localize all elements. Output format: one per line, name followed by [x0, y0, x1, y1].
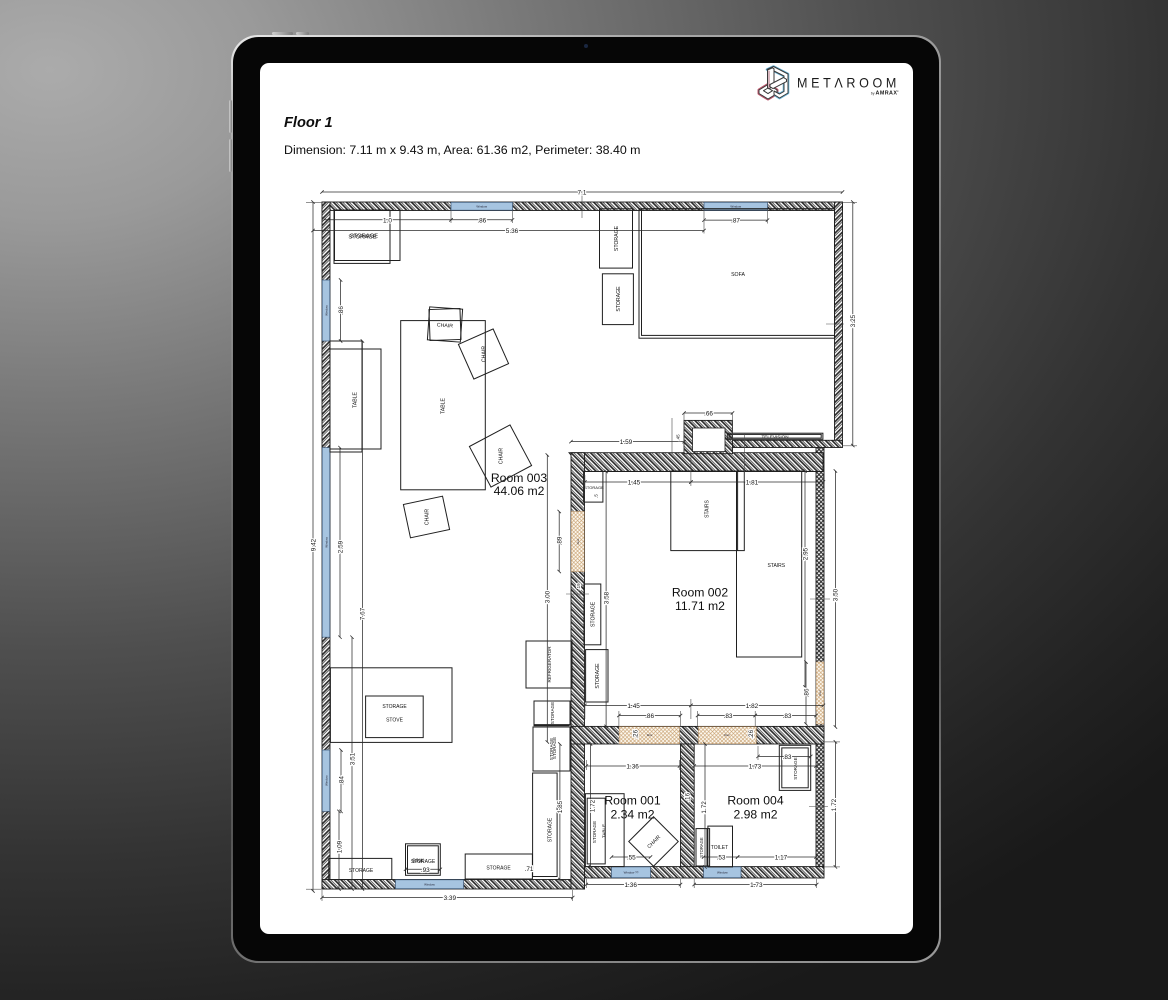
svg-text:1.73: 1.73: [749, 764, 762, 771]
svg-text:STAIRS: STAIRS: [767, 563, 785, 569]
svg-text:STORAGE: STORAGE: [350, 234, 378, 240]
svg-text:.86: .86: [803, 688, 810, 697]
svg-text:TABLE: TABLE: [441, 397, 447, 414]
svg-text:Window: Window: [717, 871, 729, 875]
svg-text:.45: .45: [675, 434, 680, 441]
svg-text:.89: .89: [557, 536, 564, 545]
svg-text:3.25: 3.25: [850, 314, 857, 327]
svg-text:.86: .86: [477, 217, 486, 224]
svg-text:REFRIGERATOR: REFRIGERATOR: [547, 646, 552, 683]
svg-text:1.85: 1.85: [557, 800, 564, 813]
svg-text:1.59: 1.59: [620, 439, 633, 446]
svg-text:Room 002: Room 002: [672, 586, 728, 600]
svg-text:Room 004: Room 004: [727, 794, 783, 808]
svg-text:3.51: 3.51: [349, 752, 356, 765]
svg-text:.93: .93: [421, 867, 430, 874]
svg-text:1.36: 1.36: [624, 882, 637, 889]
svg-text:2.34 m2: 2.34 m2: [610, 808, 654, 822]
svg-text:STORAGE: STORAGE: [595, 663, 601, 689]
svg-text:STORAGE: STORAGE: [793, 757, 798, 779]
svg-text:.53: .53: [717, 855, 726, 862]
svg-text:1.45: 1.45: [628, 480, 641, 487]
svg-text:1.36: 1.36: [626, 764, 639, 771]
svg-text:1.72: 1.72: [831, 798, 838, 811]
svg-text:Door: Door: [647, 733, 653, 737]
svg-text:SOFA: SOFA: [731, 272, 745, 278]
svg-text:STORAGE: STORAGE: [614, 225, 620, 251]
svg-text:Window: Window: [325, 304, 329, 316]
svg-text:.55: .55: [627, 855, 636, 862]
svg-text:Window: Window: [730, 205, 742, 209]
svg-text:Door: Door: [576, 539, 580, 545]
svg-text:.86: .86: [645, 713, 654, 720]
svg-text:1.09: 1.09: [336, 840, 343, 853]
svg-text:1.0: 1.0: [383, 217, 392, 224]
svg-text:1.82: 1.82: [746, 703, 759, 710]
svg-text:STORAGE: STORAGE: [590, 601, 596, 627]
svg-text:STORAGE: STORAGE: [486, 866, 511, 872]
svg-text:5.36: 5.36: [506, 228, 519, 235]
svg-text:TABLE: TABLE: [353, 391, 359, 408]
svg-text:SINK: SINK: [412, 859, 424, 865]
svg-text:1.73: 1.73: [750, 882, 763, 889]
svg-text:STOVE: STOVE: [386, 718, 404, 724]
svg-text:.26: .26: [632, 729, 639, 738]
svg-text:44.06 m2: 44.06 m2: [494, 484, 545, 498]
svg-text:9.42: 9.42: [310, 538, 317, 551]
svg-text:CHAIR: CHAIR: [646, 834, 662, 850]
svg-text:STORAGE: STORAGE: [548, 817, 554, 842]
svg-text:3.00: 3.00: [545, 590, 552, 603]
svg-text:7.67: 7.67: [360, 607, 367, 620]
svg-text:STORAGE: STORAGE: [552, 737, 557, 759]
svg-text:1.81: 1.81: [746, 480, 759, 487]
svg-text:3.39: 3.39: [444, 895, 457, 902]
svg-text:.83: .83: [783, 754, 792, 761]
svg-text:CHAIR: CHAIR: [482, 346, 488, 362]
svg-text:3.50: 3.50: [833, 588, 840, 601]
svg-text:1.17: 1.17: [775, 855, 788, 862]
svg-text:Door: Door: [724, 733, 730, 737]
svg-text:Room 001: Room 001: [604, 794, 660, 808]
svg-text:Window: Window: [325, 536, 329, 548]
svg-text:7.1: 7.1: [578, 189, 587, 196]
svg-text:CHAIR: CHAIR: [437, 322, 454, 329]
svg-text:.83: .83: [724, 713, 733, 720]
svg-text:.16: .16: [685, 792, 692, 801]
svg-text:2.95: 2.95: [802, 547, 809, 560]
svg-text:Window: Window: [324, 775, 328, 787]
svg-text:11.71 m2: 11.71 m2: [675, 599, 725, 613]
svg-text:STORAGE: STORAGE: [550, 702, 555, 724]
svg-text:STORAGE: STORAGE: [699, 837, 704, 858]
svg-text:STORAGE: STORAGE: [382, 704, 407, 710]
svg-text:TABLE: TABLE: [602, 824, 607, 838]
svg-text:Door: Door: [818, 690, 822, 696]
svg-text:TELEVISION: TELEVISION: [761, 435, 788, 440]
svg-text:STORAGE: STORAGE: [349, 868, 374, 874]
svg-text:1.72: 1.72: [701, 801, 708, 814]
svg-text:CHAIR: CHAIR: [499, 448, 505, 464]
svg-text:STORAGE: STORAGE: [584, 485, 604, 490]
svg-text:2.98 m2: 2.98 m2: [733, 808, 777, 822]
svg-text:STAIRS: STAIRS: [705, 499, 711, 517]
svg-text:.5: .5: [593, 494, 598, 498]
svg-text:2.59: 2.59: [337, 540, 344, 553]
svg-text:Window: Window: [476, 205, 488, 209]
svg-text:Window: Window: [424, 883, 436, 887]
svg-text:.71: .71: [525, 866, 534, 873]
svg-text:CHAIR: CHAIR: [425, 509, 431, 525]
svg-text:1.72: 1.72: [589, 799, 596, 812]
svg-text:.26: .26: [748, 729, 755, 738]
svg-text:3.58: 3.58: [603, 591, 610, 604]
svg-text:.66: .66: [704, 411, 713, 418]
svg-text:STORAGE: STORAGE: [616, 286, 622, 312]
svg-text:1.45: 1.45: [627, 703, 640, 710]
svg-text:TOILET: TOILET: [711, 845, 728, 851]
svg-text:.19: .19: [576, 583, 581, 590]
svg-text:STORAGE: STORAGE: [592, 821, 597, 843]
svg-text:Window ??: Window ??: [624, 871, 639, 875]
svg-text:.84: .84: [338, 776, 345, 785]
svg-text:.87: .87: [731, 218, 740, 225]
svg-text:.83: .83: [783, 713, 792, 720]
svg-text:.86: .86: [338, 306, 345, 315]
